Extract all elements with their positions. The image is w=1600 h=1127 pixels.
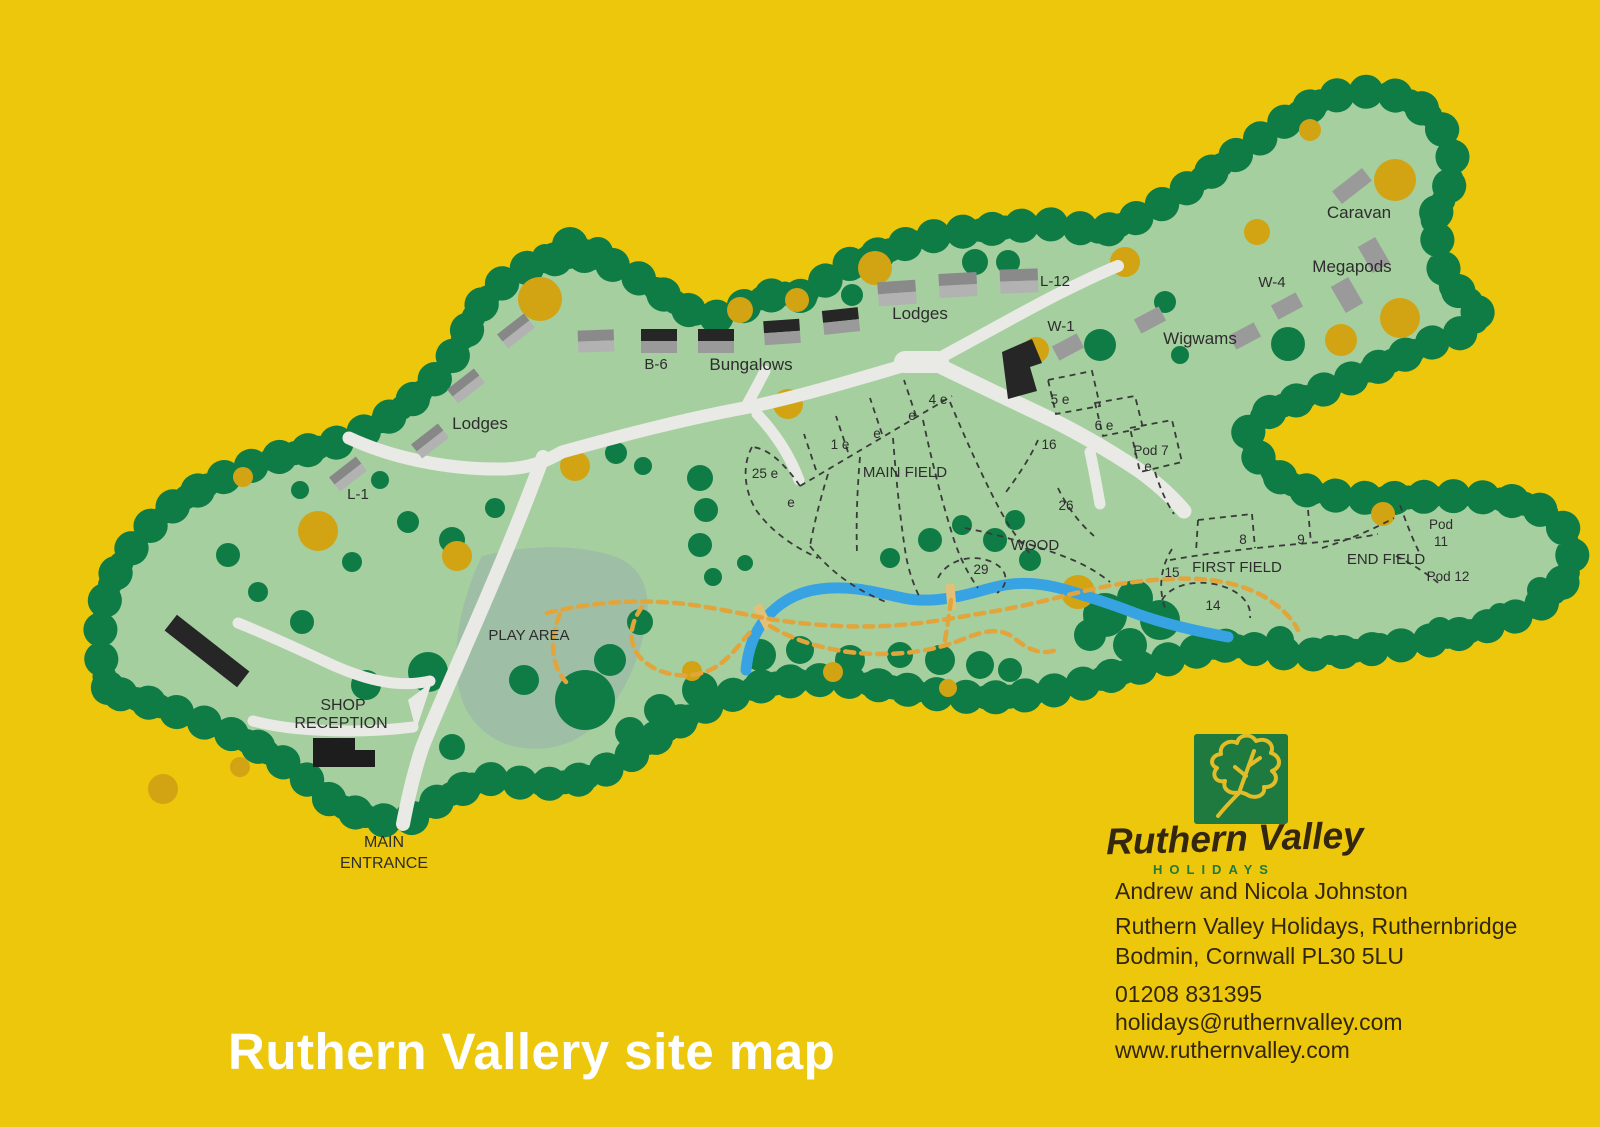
map-label-entrance: ENTRANCE — [340, 855, 428, 872]
map-label-26: 26 — [1058, 498, 1073, 513]
map-label-megapods: Megapods — [1312, 257, 1391, 276]
map-label-b-6: B-6 — [644, 356, 667, 373]
map-label-wood: WOOD — [1011, 537, 1059, 554]
bungalow-building — [822, 307, 860, 335]
bungalow-building — [698, 329, 734, 353]
map-label-wigwams: Wigwams — [1163, 329, 1237, 348]
map-label-e: e — [1144, 459, 1152, 474]
map-label-4-e: 4 e — [929, 392, 948, 407]
map-label-end-field: END FIELD — [1347, 551, 1426, 568]
map-label-e: e — [873, 426, 881, 441]
map-label-15: 15 — [1164, 565, 1179, 580]
contact-address-line1: Ruthern Valley Holidays, Ruthernbridge — [1115, 913, 1517, 940]
map-label-caravan: Caravan — [1327, 203, 1391, 222]
lodge-building — [578, 329, 615, 352]
logo — [1194, 734, 1288, 824]
lodge-building — [1000, 268, 1039, 293]
map-label-w-1: W-1 — [1047, 318, 1074, 335]
map-label-bungalows: Bungalows — [709, 355, 792, 374]
oak-leaf-icon — [1194, 734, 1288, 824]
map-label-lodges: Lodges — [892, 304, 948, 323]
map-label-play-area: PLAY AREA — [488, 627, 569, 644]
map-label-6-e: 6 e — [1095, 418, 1114, 433]
page-title: Ruthern Vallery site map — [228, 1022, 835, 1081]
contact-phone: 01208 831395 — [1115, 981, 1262, 1008]
map-label-1-e: 1 e — [831, 437, 850, 452]
map-label-pod-7: Pod 7 — [1133, 443, 1168, 458]
contact-email: holidays@ruthernvalley.com — [1115, 1009, 1403, 1036]
contact-website: www.ruthernvalley.com — [1115, 1037, 1350, 1064]
map-label-w-4: W-4 — [1258, 274, 1285, 291]
map-label-lodges: Lodges — [452, 414, 508, 433]
bungalow-building — [763, 319, 801, 345]
map-label-main: MAIN — [364, 834, 404, 851]
map-label-9: 9 — [1297, 532, 1305, 547]
brand-name: Ruthern Valley — [1105, 815, 1356, 864]
brand-tagline: HOLIDAYS — [1106, 862, 1322, 877]
map-label-25-e: 25 e — [752, 466, 778, 481]
map-label-e: e — [787, 495, 795, 510]
lodge-building — [938, 272, 977, 298]
contact-owners: Andrew and Nicola Johnston — [1115, 878, 1408, 905]
map-label-8: 8 — [1239, 532, 1247, 547]
map-label-29: 29 — [973, 562, 988, 577]
bungalow-building — [641, 329, 677, 353]
site-map-page: CaravanMegapodsW-4WigwamsW-1L-12LodgesBu… — [0, 0, 1600, 1127]
map-label-14: 14 — [1205, 598, 1221, 613]
map-label-main-field: MAIN FIELD — [863, 464, 947, 481]
map-label-11: 11 — [1434, 534, 1448, 549]
map-label-l-1: L-1 — [347, 486, 369, 503]
lodge-building — [877, 280, 917, 307]
map-label-pod: Pod — [1429, 517, 1453, 532]
map-label-shop: SHOP — [320, 697, 365, 714]
map-label-reception: RECEPTION — [294, 715, 387, 732]
map-label-l-12: L-12 — [1040, 273, 1070, 290]
map-label-first-field: FIRST FIELD — [1192, 559, 1282, 576]
map-label-pod-12: Pod 12 — [1427, 569, 1470, 584]
map-label-5-e: 5 e — [1051, 392, 1070, 407]
map-label-16: 16 — [1041, 437, 1056, 452]
contact-address-line2: Bodmin, Cornwall PL30 5LU — [1115, 943, 1404, 970]
map-label-e: e — [908, 408, 916, 423]
